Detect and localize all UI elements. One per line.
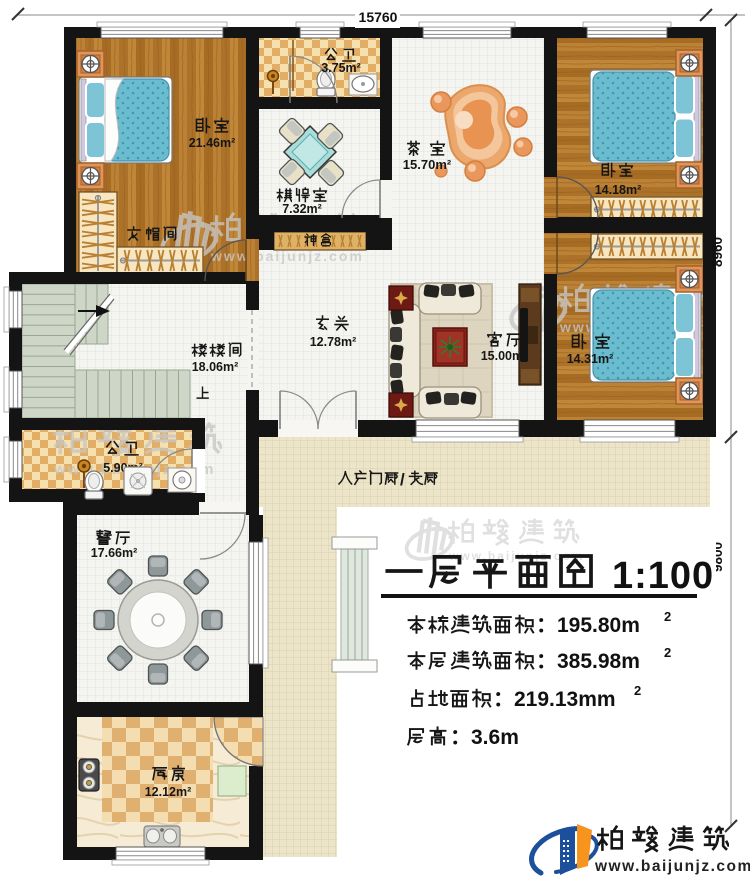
svg-text:2: 2 <box>664 645 671 660</box>
svg-text:18.06m²: 18.06m² <box>192 360 239 374</box>
svg-text:/: / <box>400 470 405 489</box>
svg-text:8960: 8960 <box>710 237 725 267</box>
svg-text:www.baijunjz.com: www.baijunjz.com <box>594 858 750 875</box>
svg-text:15.70m²: 15.70m² <box>403 157 452 172</box>
svg-text:17.66m²: 17.66m² <box>91 546 138 560</box>
svg-text:14.18m²: 14.18m² <box>595 183 642 197</box>
svg-text:12.78m²: 12.78m² <box>310 335 357 349</box>
svg-text:：219.13mm: ：219.13mm <box>493 688 616 711</box>
svg-text:：195.80m: ：195.80m <box>536 614 640 637</box>
svg-text:12.12m²: 12.12m² <box>145 785 192 799</box>
svg-text:2: 2 <box>664 609 671 624</box>
svg-text:1:100: 1:100 <box>612 555 714 597</box>
svg-text:：385.98m: ：385.98m <box>536 650 640 673</box>
svg-text:2: 2 <box>634 683 641 698</box>
svg-text:7.32m²: 7.32m² <box>282 202 322 216</box>
svg-text:15760: 15760 <box>359 9 398 25</box>
svg-text:：3.6m: ：3.6m <box>450 726 519 749</box>
svg-text:14.31m²: 14.31m² <box>567 352 614 366</box>
svg-text:3.75m²: 3.75m² <box>321 61 361 75</box>
svg-text:21.46m²: 21.46m² <box>189 136 236 150</box>
svg-text:15.00m²: 15.00m² <box>481 349 528 363</box>
